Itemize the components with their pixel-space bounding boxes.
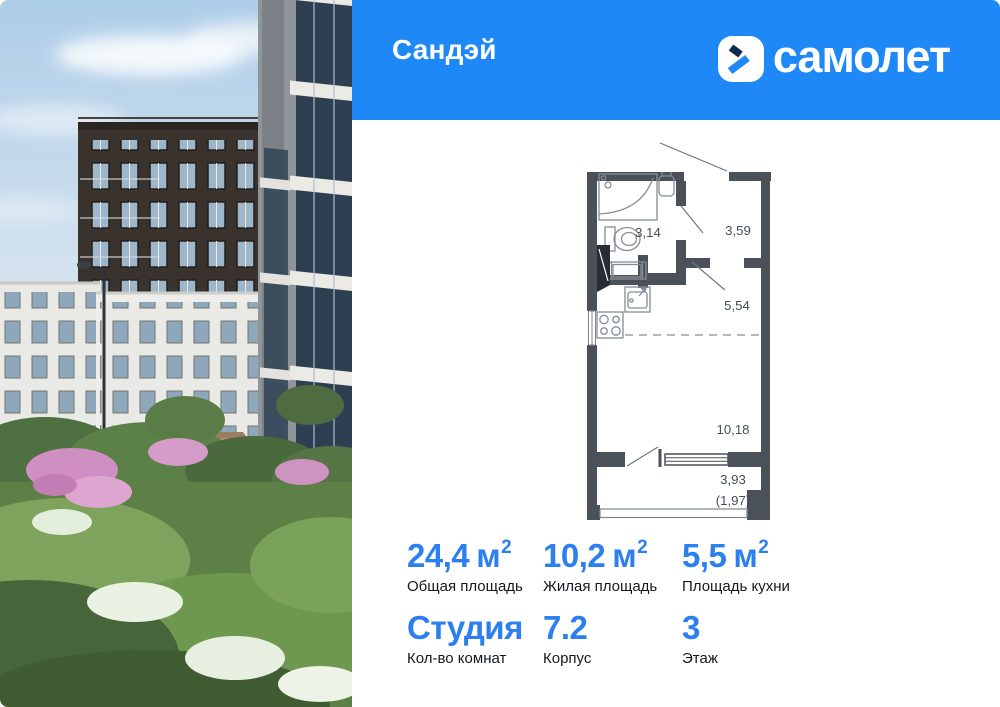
stat-total-area-value: 24,4м2 (407, 533, 523, 573)
hallway-area-label: 3,59 (725, 223, 751, 238)
stat-living-area-value: 10,2м2 (543, 533, 657, 573)
stat-building: 7.2 Корпус (543, 611, 591, 667)
stat-floor-label: Этаж (682, 650, 718, 667)
development-photo-image (0, 0, 352, 707)
kitchen-area-label: 5,54 (724, 298, 750, 313)
stat-floor-value: 3 (682, 611, 718, 645)
stat-floor: 3 Этаж (682, 611, 718, 667)
living-room-area-label: 10,18 (716, 422, 749, 437)
stat-total-area: 24,4м2 Общая площадь (407, 533, 523, 595)
kitchen-sink-icon (625, 287, 650, 312)
stove-icon (597, 312, 623, 338)
listing-card[interactable]: Сандэй самолет (0, 0, 1000, 707)
stat-building-label: Корпус (543, 650, 591, 667)
stat-kitchen-area: 5,5м2 Площадь кухни (682, 533, 790, 595)
stat-rooms: Студия Кол-во комнат (407, 611, 523, 667)
stat-living-area-label: Жилая площадь (543, 578, 657, 595)
stat-rooms-value: Студия (407, 611, 523, 645)
samolet-logo-icon (718, 36, 764, 82)
development-photo (0, 0, 352, 707)
stat-kitchen-area-label: Площадь кухни (682, 578, 790, 595)
bathroom-area-label: 3,14 (635, 225, 661, 240)
details-panel: Сандэй самолет (352, 0, 1000, 707)
stat-building-value: 7.2 (543, 611, 591, 645)
brand-logo: самолет (718, 36, 950, 82)
stat-living-area: 10,2м2 Жилая площадь (543, 533, 657, 595)
shaft (597, 245, 610, 292)
project-title: Сандэй (392, 34, 497, 66)
floor-plan: 3,14 3,59 5,54 10,18 3,93 (1,97) (575, 138, 805, 533)
header-bar: Сандэй самолет (352, 0, 1000, 120)
stat-total-area-label: Общая площадь (407, 578, 523, 595)
stat-kitchen-area-value: 5,5м2 (682, 533, 790, 573)
stat-rooms-label: Кол-во комнат (407, 650, 523, 667)
brand-name: самолет (773, 34, 950, 80)
balcony-area-label: 3,93 (720, 472, 746, 487)
balcony-reduced-area-label: (1,97) (716, 493, 750, 508)
